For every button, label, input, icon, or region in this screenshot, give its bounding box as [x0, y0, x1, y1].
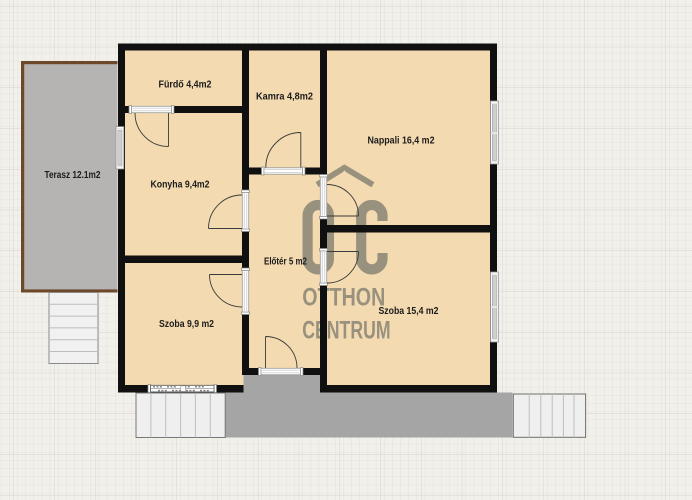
svg-text:Előtér 5 m2: Előtér 5 m2: [264, 257, 307, 268]
svg-text:Szoba 9,9 m2: Szoba 9,9 m2: [159, 319, 214, 330]
svg-text:Fürdő 4,4m2: Fürdő 4,4m2: [159, 80, 212, 91]
svg-text:Nappali 16,4 m2: Nappali 16,4 m2: [368, 136, 435, 147]
svg-text:Szoba 15,4 m2: Szoba 15,4 m2: [379, 306, 439, 317]
svg-text:CENTRUM: CENTRUM: [302, 316, 390, 344]
svg-text:OTTHON: OTTHON: [302, 283, 385, 311]
svg-text:Terasz 12.1m2: Terasz 12.1m2: [45, 170, 101, 181]
svg-text:Konyha 9,4m2: Konyha 9,4m2: [151, 180, 210, 191]
svg-text:Kamra 4,8m2: Kamra 4,8m2: [256, 92, 313, 103]
